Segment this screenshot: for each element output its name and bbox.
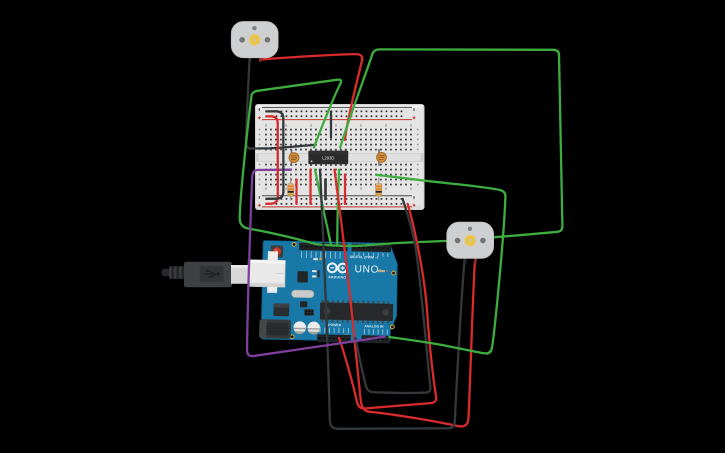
svg-text:UNO: UNO	[354, 264, 379, 276]
svg-text:DIGITAL (PWM ~): DIGITAL (PWM ~)	[350, 255, 379, 260]
svg-text:ARDUINO: ARDUINO	[328, 275, 346, 279]
svg-text:POWER: POWER	[328, 323, 341, 327]
svg-text:ANALOG IN: ANALOG IN	[364, 324, 384, 328]
svg-text:L293D: L293D	[322, 156, 334, 161]
